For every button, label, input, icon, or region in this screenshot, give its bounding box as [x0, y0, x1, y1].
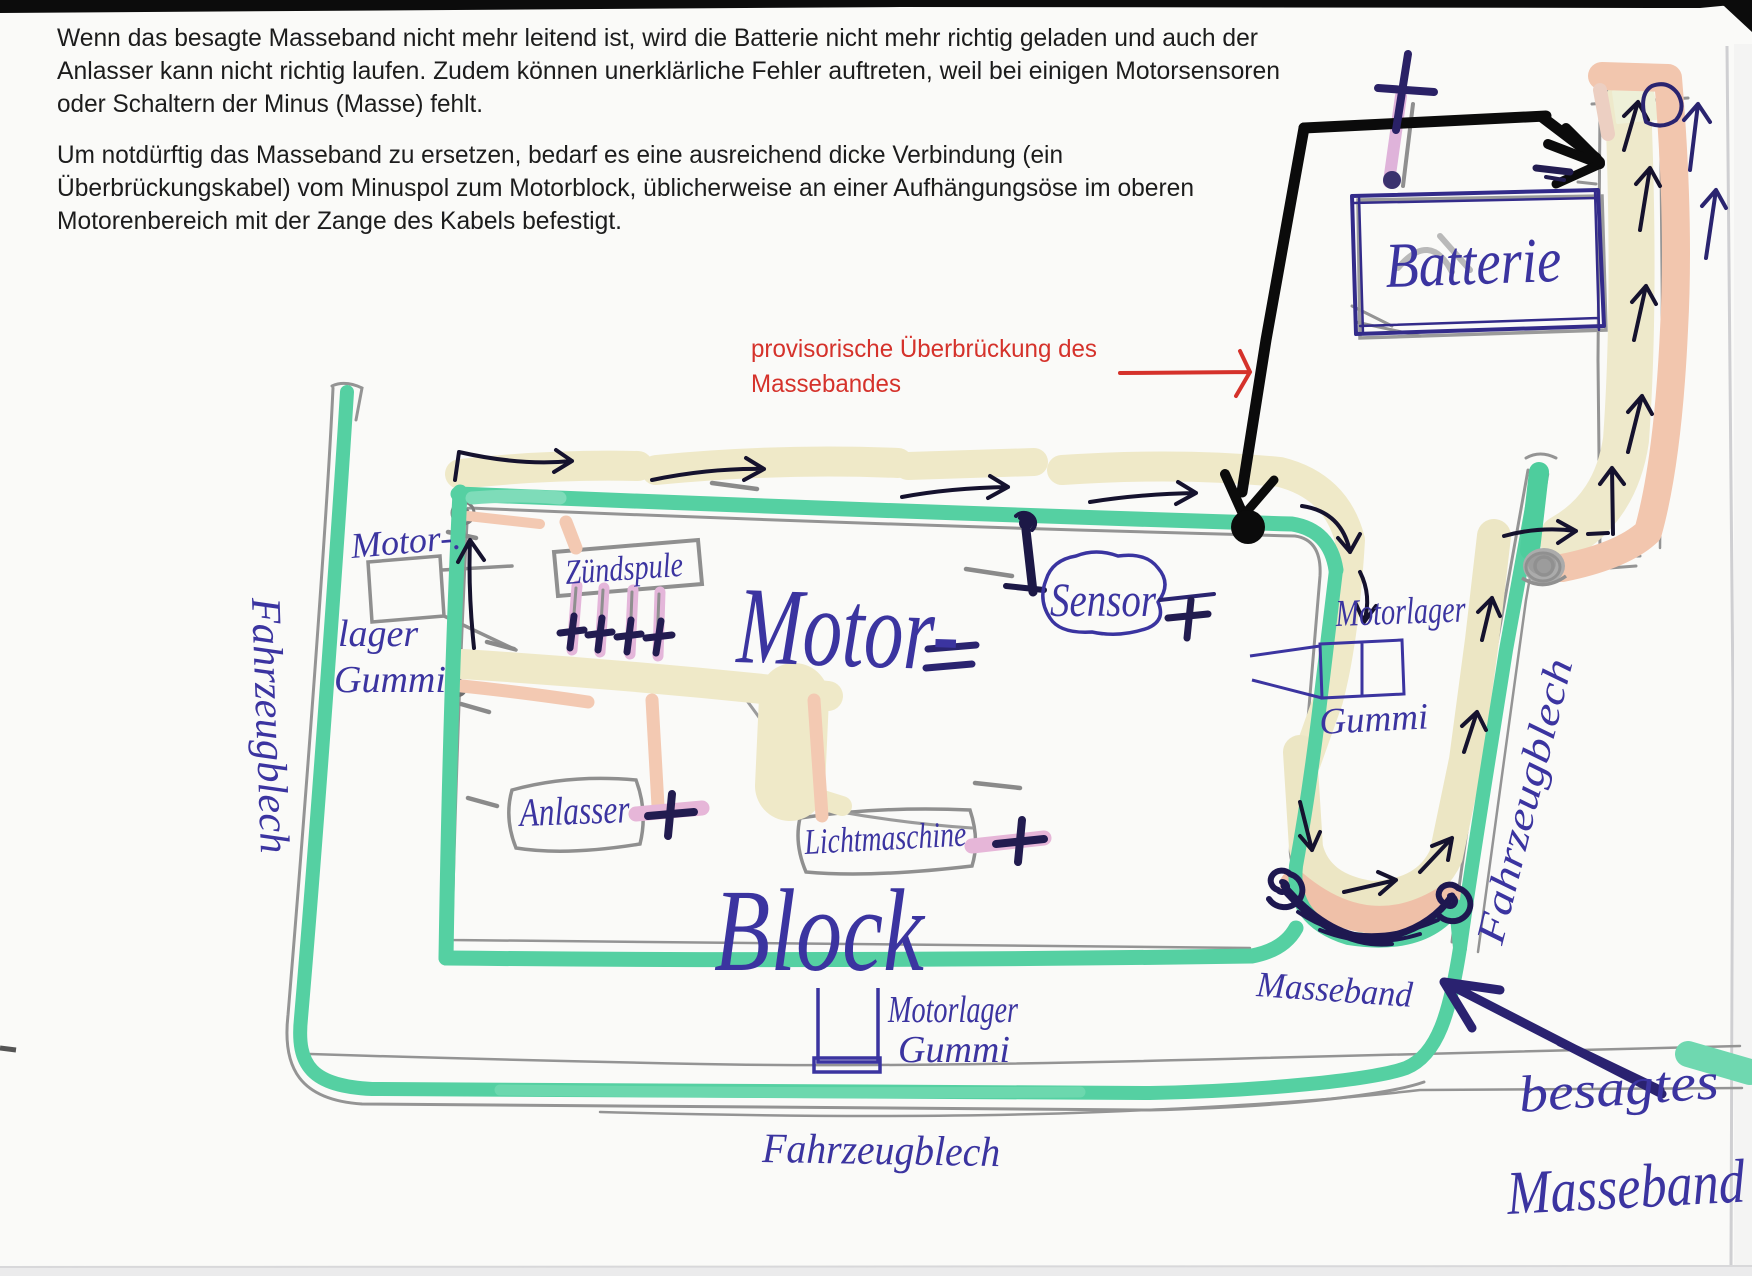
- svg-text:Fahrzeugblech: Fahrzeugblech: [761, 1126, 1001, 1176]
- svg-text:Gummi: Gummi: [1318, 696, 1429, 743]
- svg-text:Motor-: Motor-: [734, 564, 962, 694]
- svg-text:Überbrückungskabel) vom Minusp: Überbrückungskabel) vom Minuspol zum Mot…: [57, 174, 1194, 202]
- svg-text:Massebandes: Massebandes: [751, 370, 901, 398]
- svg-text:Fahrzeugblech: Fahrzeugblech: [242, 596, 297, 854]
- svg-text:Zündspule: Zündspule: [564, 545, 684, 592]
- svg-text:Motorlager: Motorlager: [887, 989, 1018, 1031]
- svg-text:Block: Block: [714, 865, 926, 996]
- svg-text:Masseband: Masseband: [1504, 1148, 1747, 1228]
- svg-text:Lichtmaschine: Lichtmaschine: [803, 814, 968, 862]
- svg-text:Sensor: Sensor: [1050, 574, 1156, 627]
- svg-text:Motorlager: Motorlager: [1334, 588, 1466, 635]
- svg-text:Motorenbereich mit der Zange d: Motorenbereich mit der Zange des Kabels …: [57, 207, 622, 235]
- svg-text:Anlasser kann nicht richtig la: Anlasser kann nicht richtig laufen. Zude…: [57, 57, 1280, 85]
- svg-text:Anlasser: Anlasser: [516, 786, 630, 835]
- svg-text:lager: lager: [338, 613, 418, 655]
- svg-text:provisorische Überbrückung des: provisorische Überbrückung des: [751, 335, 1097, 363]
- svg-text:Um notdürftig das Masseband zu: Um notdürftig das Masseband zu ersetzen,…: [57, 141, 1063, 169]
- svg-text:Batterie: Batterie: [1384, 224, 1562, 301]
- svg-text:Gummi: Gummi: [898, 1029, 1010, 1071]
- svg-text:Wenn das besagte Masseband nic: Wenn das besagte Masseband nicht mehr le…: [57, 24, 1258, 52]
- svg-text:oder Schaltern der Minus (Mass: oder Schaltern der Minus (Masse) fehlt.: [57, 90, 483, 118]
- svg-text:Gummi: Gummi: [334, 659, 446, 701]
